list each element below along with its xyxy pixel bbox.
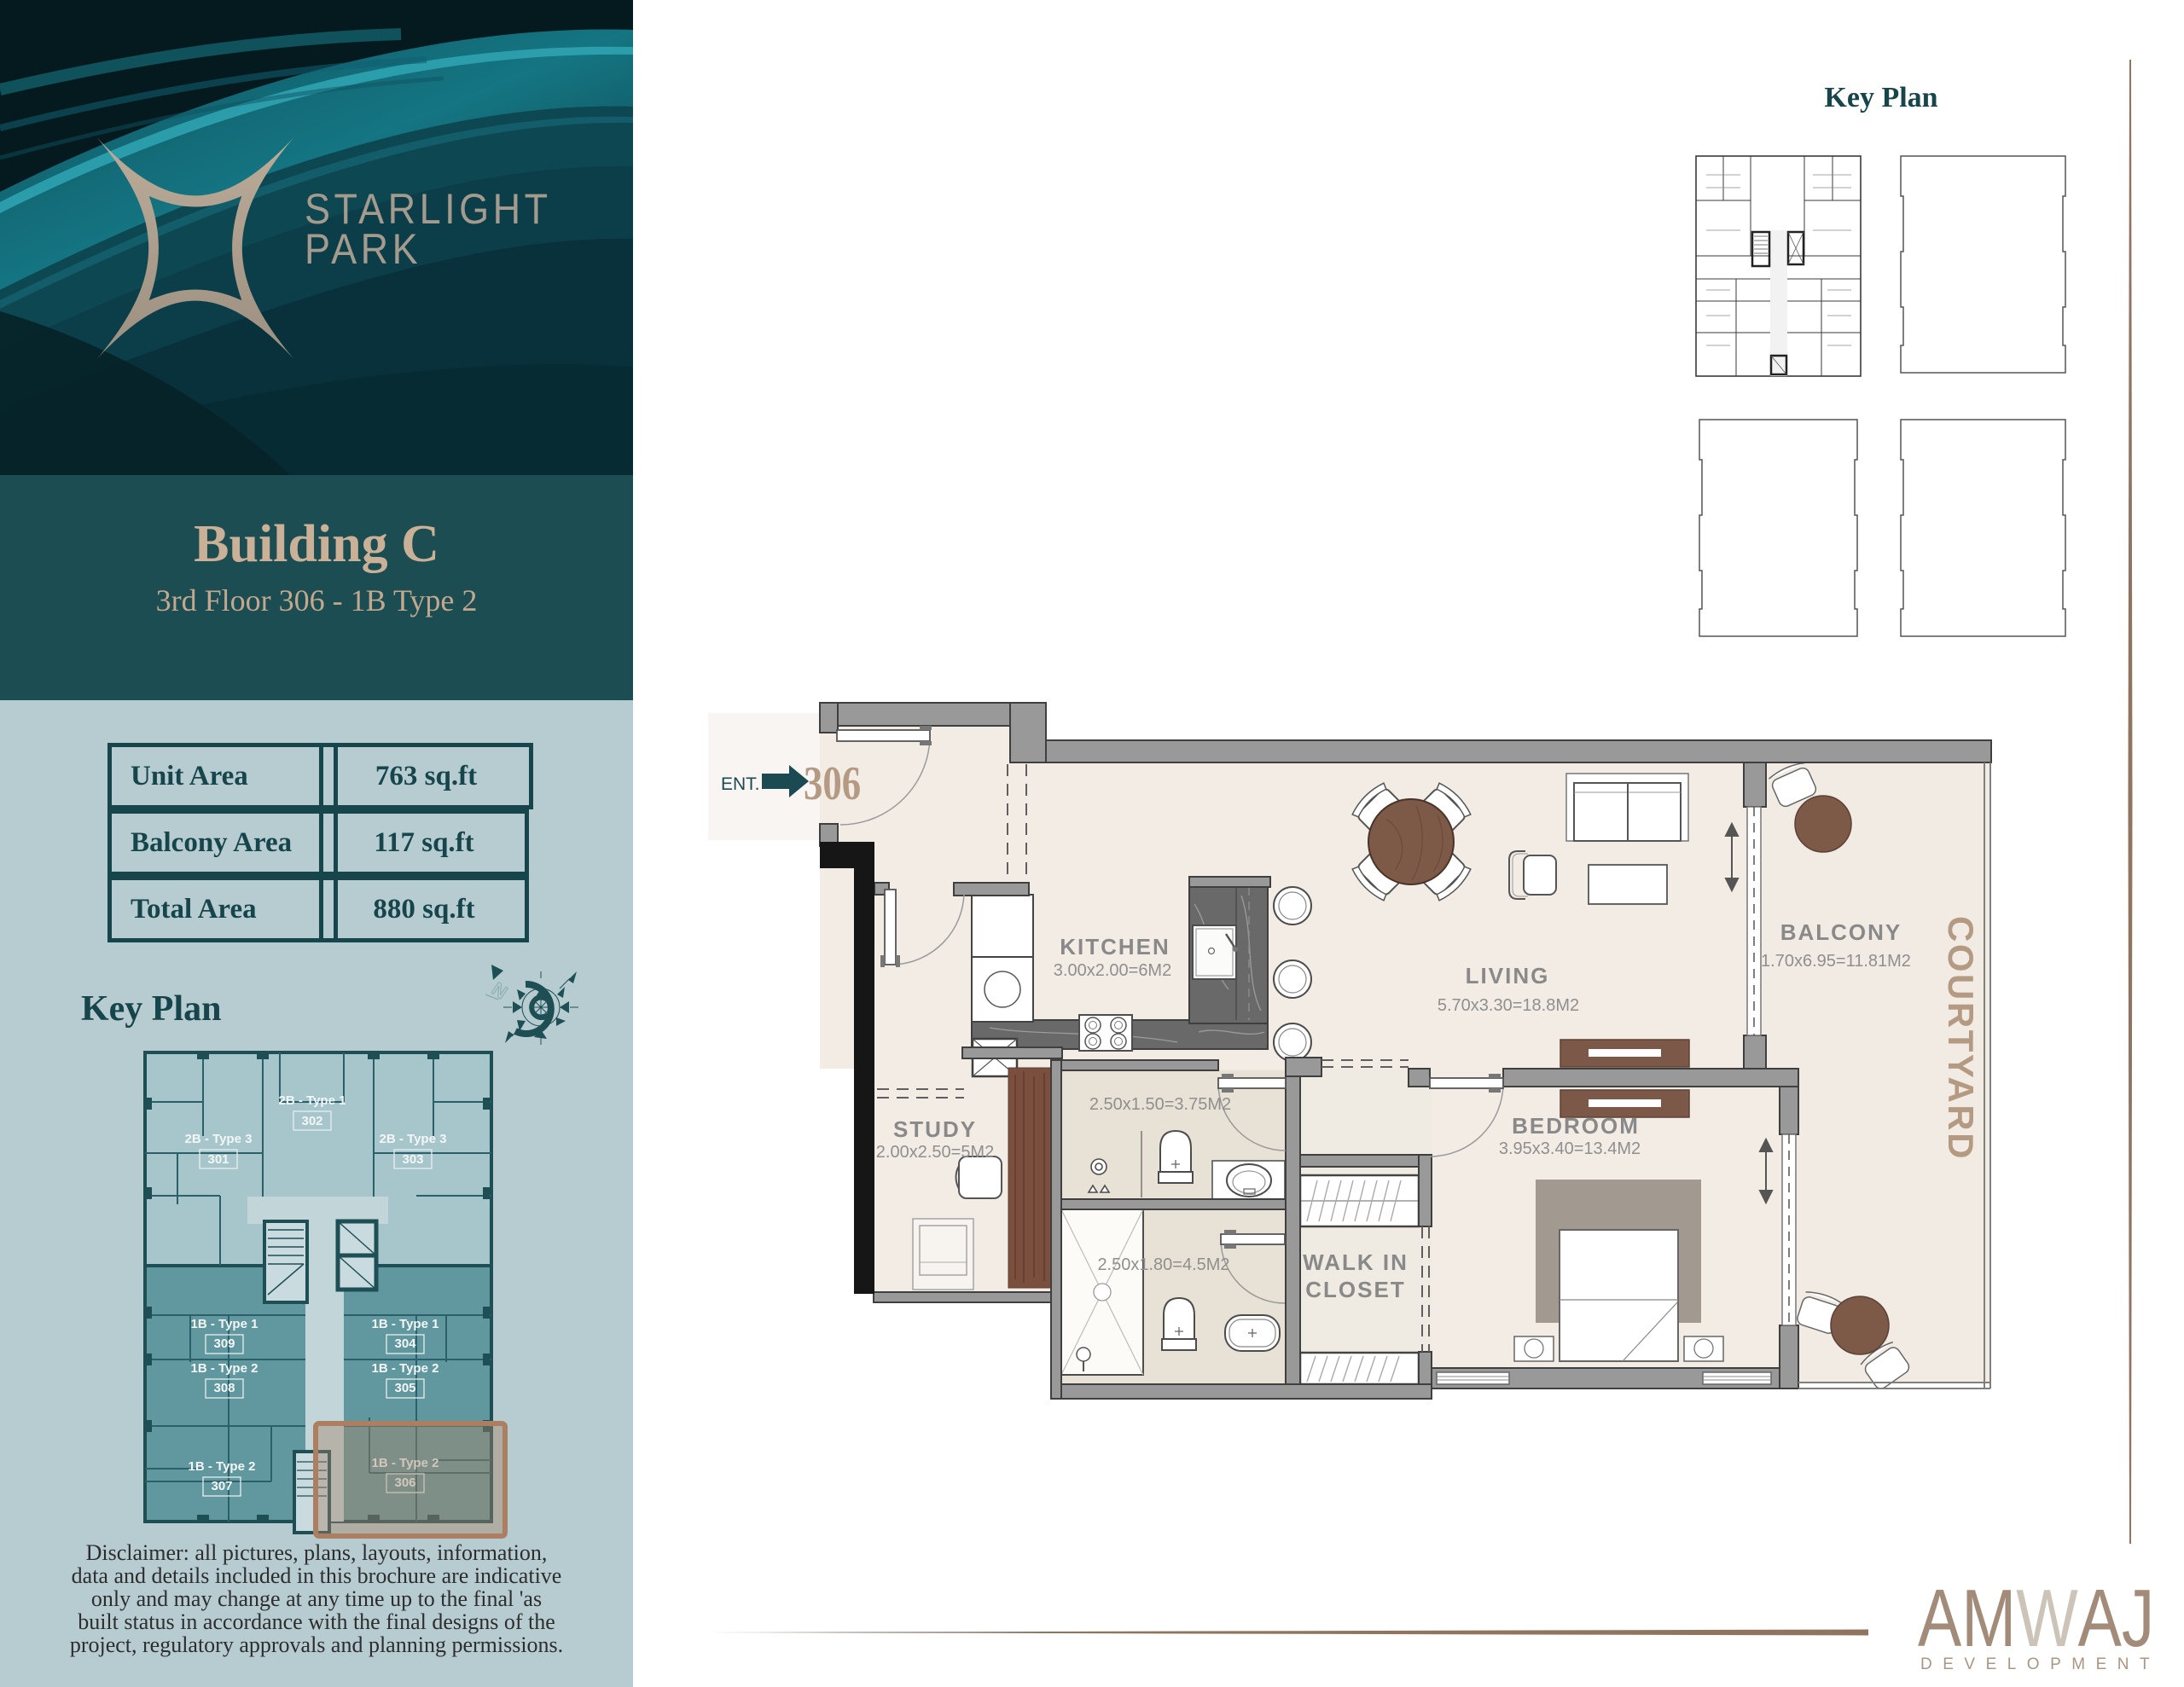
- svg-text:307: 307: [211, 1479, 232, 1493]
- svg-text:303: 303: [402, 1152, 423, 1167]
- svg-text:BALCONY: BALCONY: [1780, 919, 1902, 945]
- svg-text:2B - Type 1: 2B - Type 1: [279, 1093, 346, 1108]
- svg-text:DEVELOPMENT: DEVELOPMENT: [1920, 1655, 2160, 1673]
- svg-text:COURTYARD: COURTYARD: [1941, 916, 1981, 1161]
- svg-text:308: 308: [213, 1381, 235, 1395]
- svg-text:2.00x2.50=5M2: 2.00x2.50=5M2: [876, 1143, 994, 1162]
- svg-text:1B - Type 1: 1B - Type 1: [191, 1317, 258, 1331]
- svg-text:1B - Type 2: 1B - Type 2: [191, 1361, 258, 1376]
- svg-text:STUDY: STUDY: [893, 1116, 977, 1142]
- svg-text:3.95x3.40=13.4M2: 3.95x3.40=13.4M2: [1499, 1139, 1641, 1158]
- svg-text:2.50x1.50=3.75M2: 2.50x1.50=3.75M2: [1089, 1095, 1231, 1114]
- svg-text:2B - Type 3: 2B - Type 3: [185, 1132, 253, 1146]
- svg-text:LIVING: LIVING: [1466, 963, 1550, 988]
- svg-text:301: 301: [207, 1152, 229, 1167]
- svg-text:304: 304: [394, 1336, 416, 1351]
- svg-text:KITCHEN: KITCHEN: [1060, 934, 1170, 959]
- svg-text:1B - Type 2: 1B - Type 2: [189, 1459, 256, 1474]
- svg-text:1B - Type 1: 1B - Type 1: [372, 1317, 439, 1331]
- svg-text:AMWAJ: AMWAJ: [1918, 1573, 2154, 1664]
- svg-text:3.00x2.00=6M2: 3.00x2.00=6M2: [1054, 961, 1171, 980]
- svg-text:306: 306: [804, 757, 861, 809]
- svg-text:5.70x3.30=18.8M2: 5.70x3.30=18.8M2: [1438, 996, 1579, 1015]
- svg-text:ENT.: ENT.: [721, 774, 760, 794]
- svg-text:1B - Type 2: 1B - Type 2: [372, 1361, 439, 1376]
- svg-text:BEDROOM: BEDROOM: [1512, 1113, 1640, 1139]
- svg-text:2.50x1.80=4.5M2: 2.50x1.80=4.5M2: [1097, 1255, 1229, 1274]
- svg-text:1.70x6.95=11.81M2: 1.70x6.95=11.81M2: [1761, 952, 1911, 971]
- svg-text:305: 305: [394, 1381, 415, 1395]
- svg-text:309: 309: [213, 1336, 235, 1351]
- svg-text:2B - Type 3: 2B - Type 3: [380, 1132, 447, 1146]
- svg-text:PARK: PARK: [305, 226, 421, 274]
- svg-text:CLOSET: CLOSET: [1305, 1277, 1405, 1302]
- svg-text:N: N: [488, 978, 511, 1004]
- svg-text:302: 302: [301, 1114, 322, 1128]
- svg-text:WALK IN: WALK IN: [1303, 1249, 1409, 1275]
